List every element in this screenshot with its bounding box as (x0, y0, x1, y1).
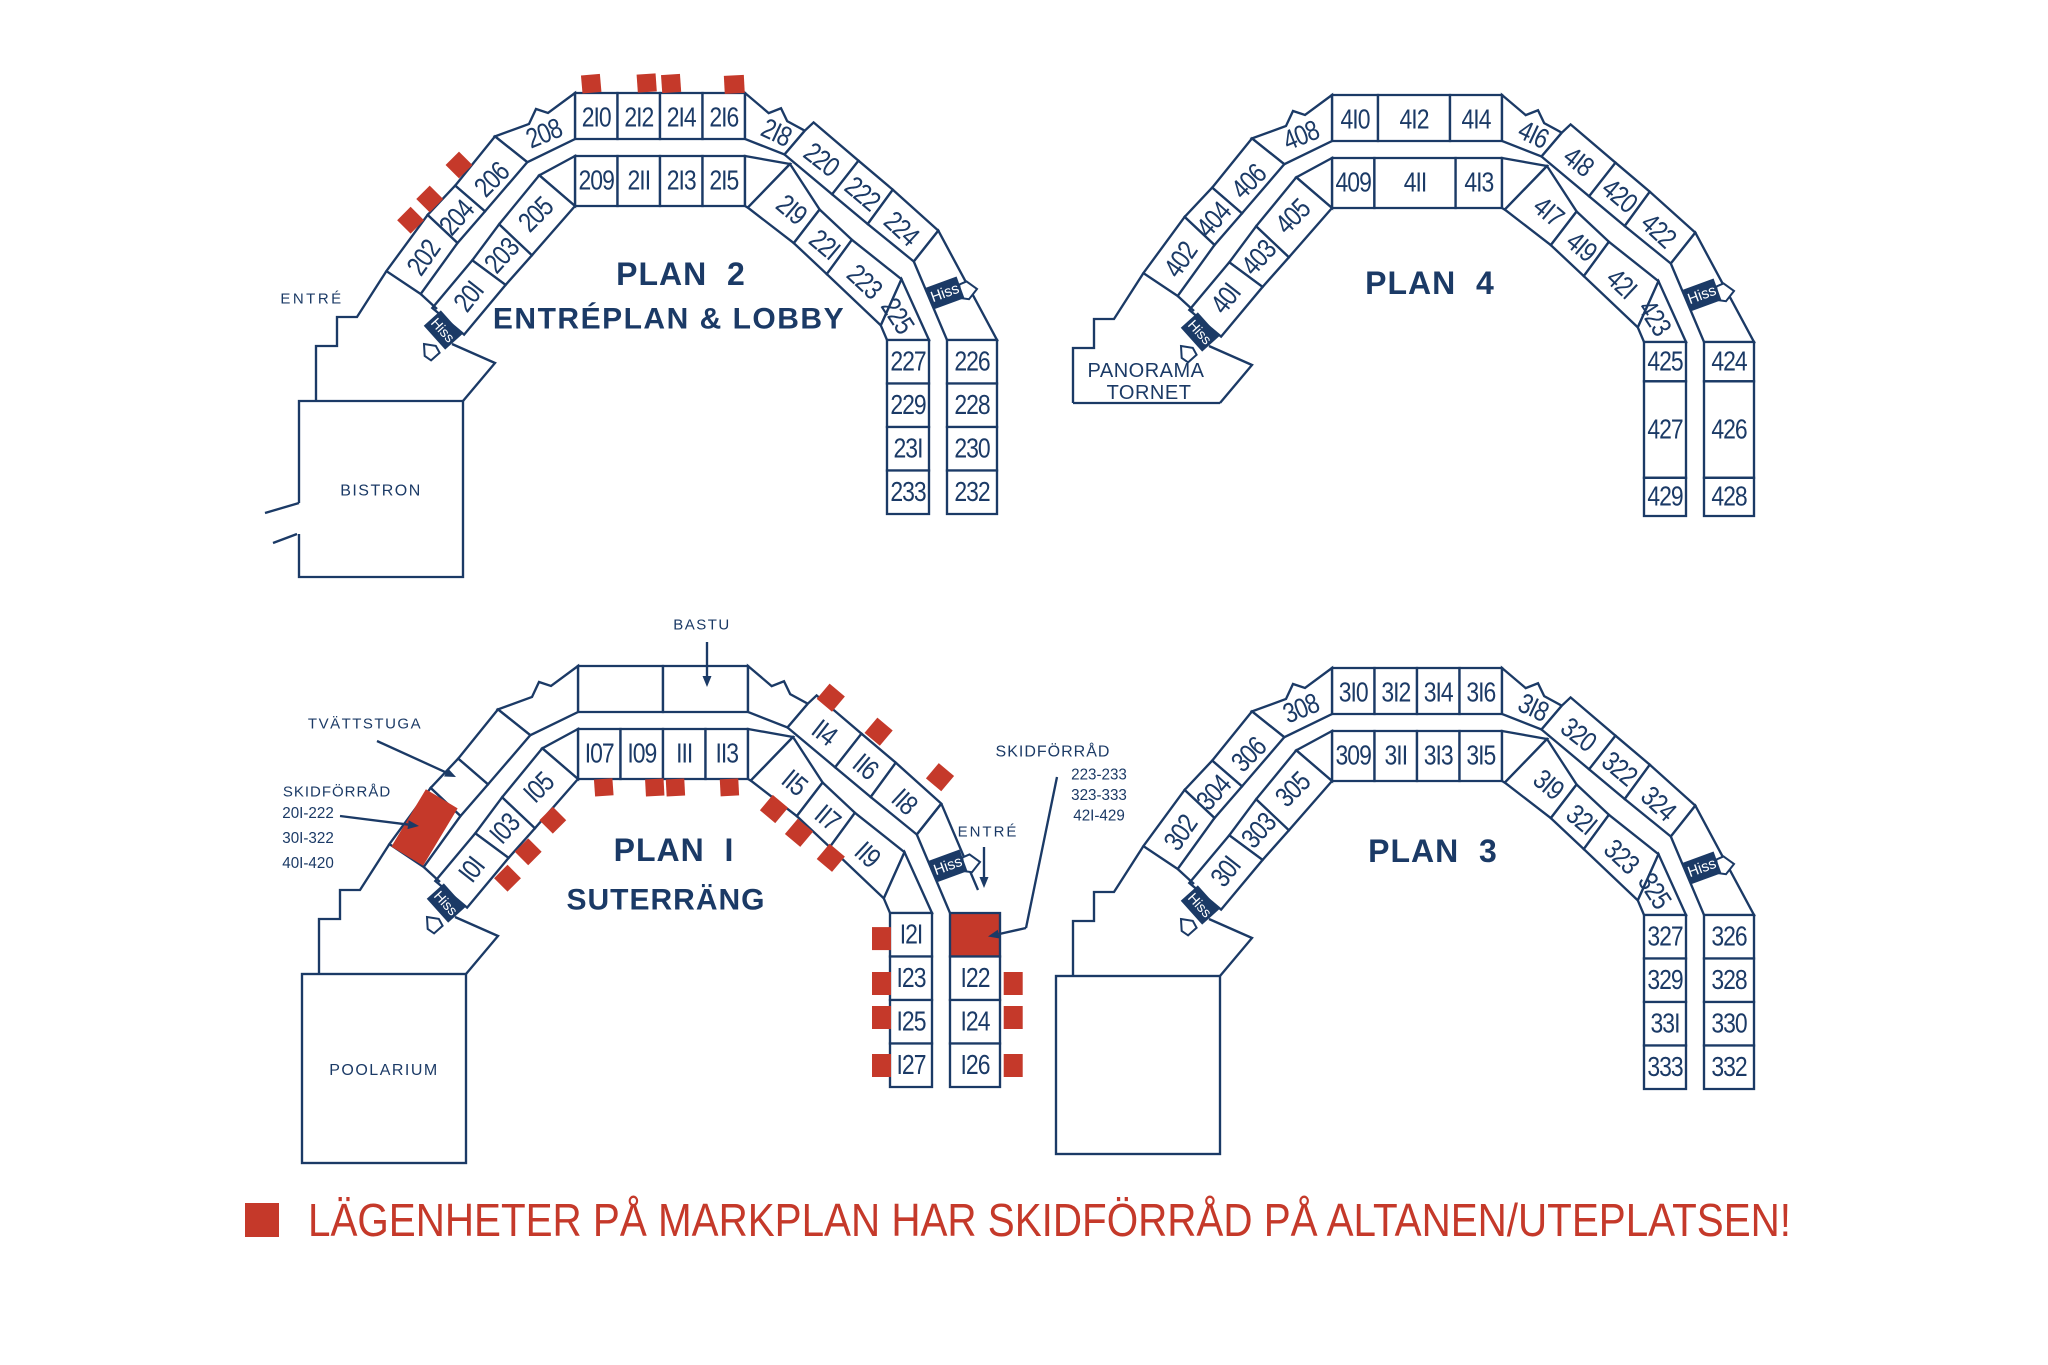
svg-text:I07: I07 (585, 739, 614, 770)
svg-text:I23: I23 (897, 963, 927, 994)
svg-text:PLAN 3: PLAN 3 (1368, 833, 1498, 869)
svg-text:ENTRÉ: ENTRÉ (958, 824, 1019, 841)
svg-text:PLAN 4: PLAN 4 (1365, 265, 1495, 301)
svg-text:309: 309 (1336, 741, 1372, 772)
svg-text:BISTRON: BISTRON (340, 483, 422, 500)
svg-text:209: 209 (579, 166, 615, 197)
svg-text:3II: 3II (1385, 741, 1408, 772)
svg-text:230: 230 (954, 433, 990, 464)
svg-text:3I0: 3I0 (1339, 678, 1369, 709)
svg-text:3I5: 3I5 (1466, 741, 1496, 772)
svg-text:233: 233 (890, 477, 926, 508)
svg-text:PANORAMA: PANORAMA (1088, 360, 1205, 382)
svg-text:30I-322: 30I-322 (282, 830, 334, 847)
svg-text:424: 424 (1711, 346, 1747, 377)
svg-text:I25: I25 (897, 1006, 927, 1037)
svg-text:POOLARIUM: POOLARIUM (329, 1062, 439, 1079)
svg-text:229: 229 (890, 390, 926, 421)
svg-text:3I4: 3I4 (1424, 678, 1454, 709)
svg-text:3I3: 3I3 (1424, 741, 1454, 772)
svg-text:I27: I27 (897, 1050, 926, 1081)
svg-text:2I5: 2I5 (709, 166, 739, 197)
svg-text:4I2: 4I2 (1400, 105, 1429, 136)
svg-text:TORNET: TORNET (1107, 382, 1192, 404)
svg-text:232: 232 (954, 477, 989, 508)
svg-text:4I4: 4I4 (1462, 105, 1492, 136)
svg-text:2I4: 2I4 (667, 103, 697, 134)
svg-text:BASTU: BASTU (673, 617, 731, 634)
svg-text:428: 428 (1711, 482, 1747, 513)
svg-text:328: 328 (1711, 965, 1747, 996)
svg-text:429: 429 (1647, 482, 1683, 513)
svg-text:409: 409 (1336, 168, 1372, 199)
svg-text:228: 228 (954, 390, 990, 421)
svg-text:I22: I22 (961, 963, 990, 994)
svg-text:223-233: 223-233 (1071, 766, 1127, 783)
svg-text:327: 327 (1647, 921, 1682, 952)
svg-text:326: 326 (1711, 921, 1747, 952)
svg-text:426: 426 (1711, 414, 1747, 445)
svg-text:I2I: I2I (900, 919, 923, 950)
svg-text:2I6: 2I6 (709, 103, 739, 134)
svg-text:3I2: 3I2 (1381, 678, 1410, 709)
svg-text:ENTRÉPLAN & LOBBY: ENTRÉPLAN & LOBBY (493, 302, 845, 336)
svg-text:I26: I26 (961, 1050, 991, 1081)
svg-text:227: 227 (890, 346, 925, 377)
svg-text:323-333: 323-333 (1071, 787, 1127, 804)
svg-text:20I-222: 20I-222 (282, 805, 334, 822)
svg-text:I24: I24 (961, 1006, 991, 1037)
svg-text:PLAN 2: PLAN 2 (616, 256, 746, 292)
svg-text:I09: I09 (627, 739, 657, 770)
svg-text:23I: 23I (894, 433, 923, 464)
svg-text:3I6: 3I6 (1466, 678, 1496, 709)
svg-text:LÄGENHETER PÅ MARKPLAN HAR SKI: LÄGENHETER PÅ MARKPLAN HAR SKIDFÖRRÅD PÅ… (308, 1194, 1791, 1246)
svg-text:33I: 33I (1651, 1008, 1680, 1039)
svg-text:ENTRÉ: ENTRÉ (280, 291, 343, 308)
svg-text:332: 332 (1711, 1052, 1746, 1083)
svg-text:4II: 4II (1404, 168, 1427, 199)
svg-text:PLAN I: PLAN I (614, 832, 735, 868)
svg-text:SUTERRÄNG: SUTERRÄNG (566, 884, 765, 917)
svg-text:4I0: 4I0 (1341, 105, 1371, 136)
svg-text:III: III (676, 739, 692, 770)
svg-text:SKIDFÖRRÅD: SKIDFÖRRÅD (283, 783, 391, 801)
svg-text:40I-420: 40I-420 (282, 855, 334, 872)
svg-text:42I-429: 42I-429 (1073, 807, 1125, 824)
svg-text:4I3: 4I3 (1464, 168, 1494, 199)
svg-text:SKIDFÖRRÅD: SKIDFÖRRÅD (996, 742, 1111, 761)
svg-text:226: 226 (954, 346, 990, 377)
svg-text:2I0: 2I0 (582, 103, 612, 134)
svg-text:427: 427 (1647, 414, 1682, 445)
svg-text:2I3: 2I3 (667, 166, 697, 197)
svg-text:2I2: 2I2 (624, 103, 653, 134)
svg-text:2II: 2II (628, 166, 651, 197)
svg-text:II3: II3 (716, 739, 739, 770)
svg-text:330: 330 (1711, 1008, 1747, 1039)
svg-text:425: 425 (1647, 346, 1683, 377)
svg-text:329: 329 (1647, 965, 1683, 996)
svg-text:333: 333 (1647, 1052, 1683, 1083)
svg-text:TVÄTTSTUGA: TVÄTTSTUGA (308, 716, 422, 733)
